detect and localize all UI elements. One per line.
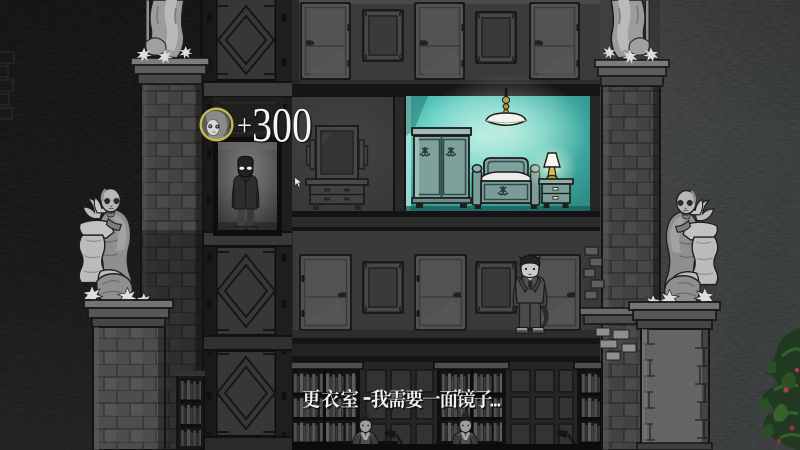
- svg-text:+: +: [237, 109, 252, 142]
- svg-text:300: 300: [252, 97, 312, 152]
